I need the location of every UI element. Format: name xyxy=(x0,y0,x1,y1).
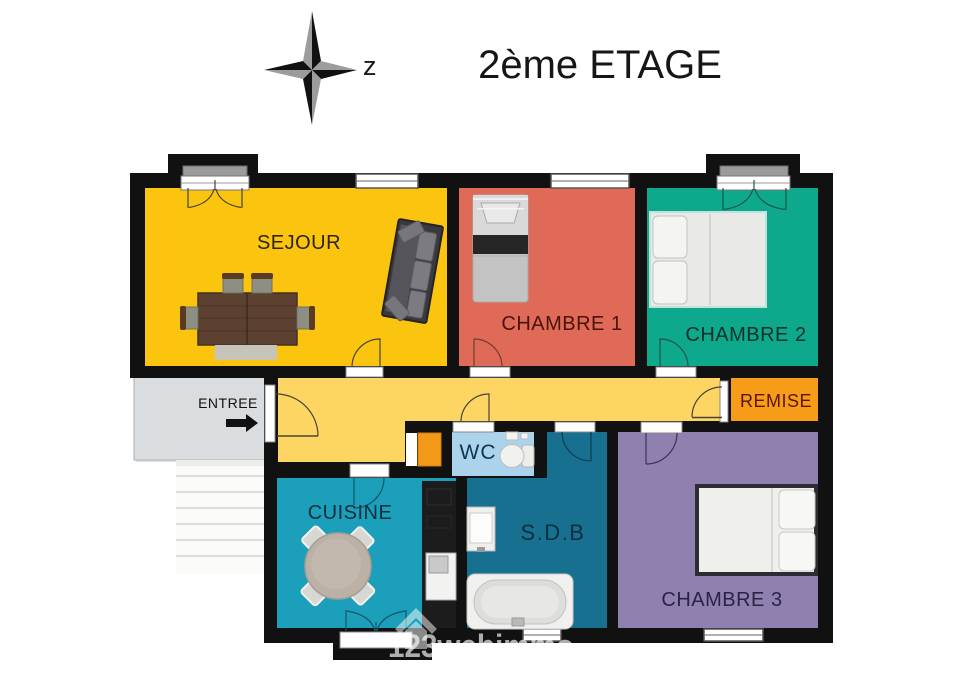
svg-text:CHAMBRE 1: CHAMBRE 1 xyxy=(501,313,622,335)
svg-text:CUISINE: CUISINE xyxy=(308,502,393,524)
svg-text:WC: WC xyxy=(460,441,497,464)
svg-text:123webimmo: 123webimmo xyxy=(388,628,574,664)
svg-text:REMISE: REMISE xyxy=(740,391,812,411)
svg-text:z: z xyxy=(363,51,377,81)
svg-text:SEJOUR: SEJOUR xyxy=(257,232,341,254)
svg-text:CHAMBRE 2: CHAMBRE 2 xyxy=(685,324,806,346)
svg-text:CHAMBRE 3: CHAMBRE 3 xyxy=(661,589,782,611)
svg-text:2ème ETAGE: 2ème ETAGE xyxy=(478,43,722,87)
svg-text:S.D.B: S.D.B xyxy=(521,520,586,545)
svg-text:ENTREE: ENTREE xyxy=(198,395,258,411)
